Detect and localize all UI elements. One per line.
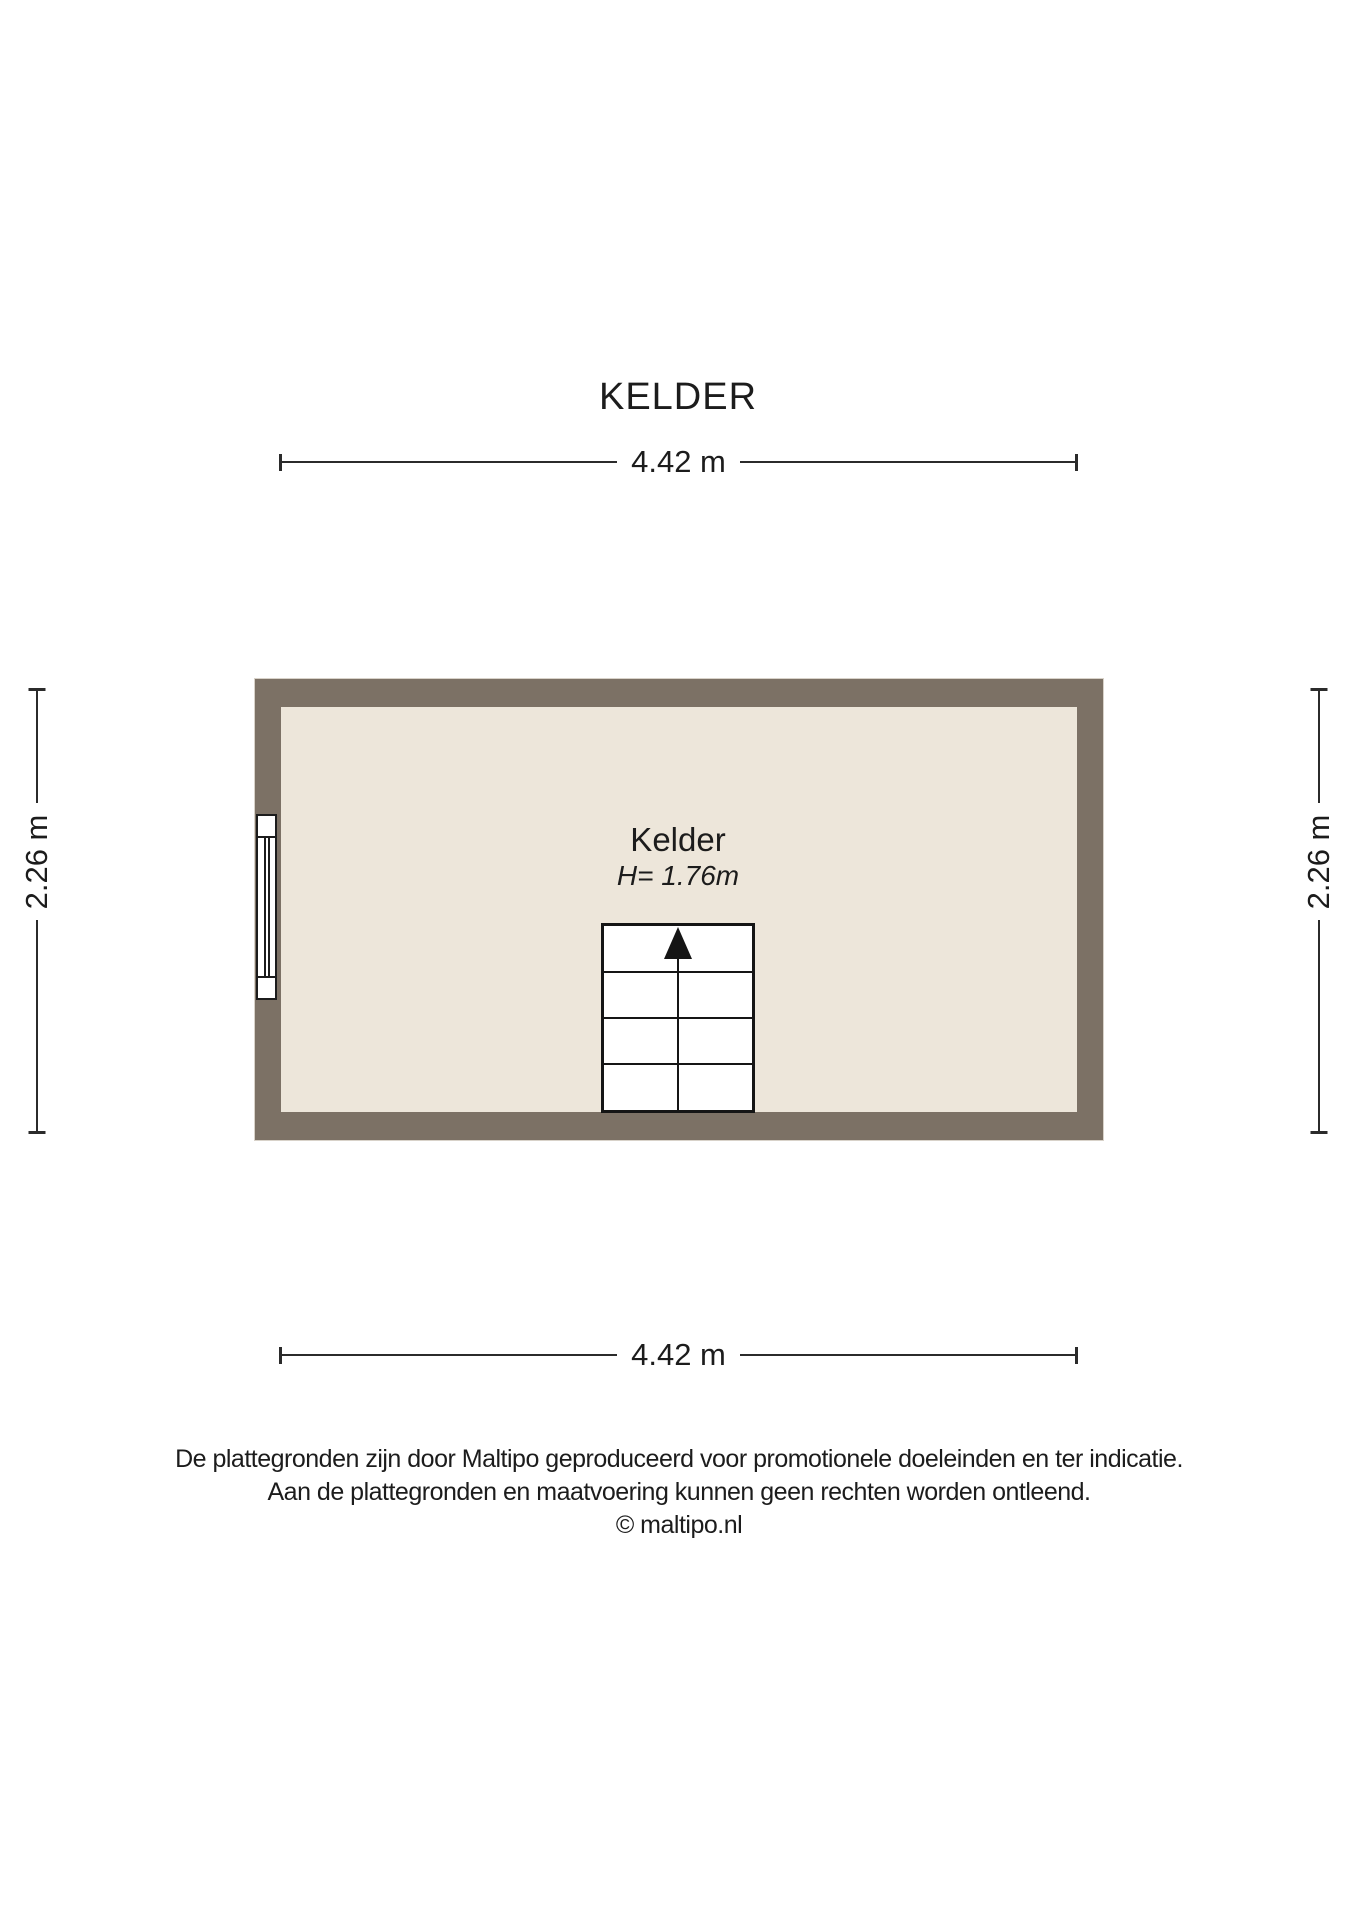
window-frame-line <box>258 836 275 838</box>
dimension-label-left: 2.26 m <box>19 815 55 910</box>
window-glass <box>264 838 266 976</box>
disclaimer-line-2: Aan de plattegronden en maatvoering kunn… <box>0 1476 1358 1509</box>
dimension-end-tick <box>29 1131 46 1134</box>
disclaimer-line-1: De plattegronden zijn door Maltipo gepro… <box>0 1443 1358 1476</box>
stairs <box>601 923 755 1113</box>
dimension-label-top: 4.42 m <box>617 444 740 480</box>
dimension-line <box>36 690 38 803</box>
dimension-left: 2.26 m <box>10 688 64 1134</box>
dimension-bottom: 4.42 m <box>279 1339 1078 1371</box>
floorplan-canvas: KELDER 4.42 m Kelder H= 1.76m 2.26 m 2.2… <box>0 0 1358 1920</box>
copyright-line: © maltipo.nl <box>0 1509 1358 1542</box>
dimension-line <box>36 920 38 1131</box>
footer-disclaimer: De plattegronden zijn door Maltipo gepro… <box>0 1443 1358 1542</box>
dimension-label-right: 2.26 m <box>1301 815 1337 910</box>
room-label: Kelder <box>630 821 725 859</box>
dimension-line <box>740 1354 1075 1356</box>
dimension-top: 4.42 m <box>279 446 1078 478</box>
dimension-end-tick <box>1075 1347 1078 1364</box>
stairs-center-line <box>677 957 679 1110</box>
dimension-line <box>740 461 1075 463</box>
dimension-end-tick <box>1075 454 1078 471</box>
dimension-label-bottom: 4.42 m <box>617 1337 740 1373</box>
dimension-line <box>282 461 617 463</box>
room-height-label: H= 1.76m <box>617 860 739 892</box>
dimension-end-tick <box>1311 1131 1328 1134</box>
window-glass <box>268 838 270 976</box>
dimension-line <box>1318 690 1320 803</box>
stairs-up-arrow-icon <box>664 927 692 959</box>
dimension-right: 2.26 m <box>1292 688 1346 1134</box>
dimension-line <box>282 1354 617 1356</box>
dimension-line <box>1318 920 1320 1131</box>
plan-title: KELDER <box>599 376 757 419</box>
window-frame-line <box>258 976 275 978</box>
window <box>256 814 277 1000</box>
